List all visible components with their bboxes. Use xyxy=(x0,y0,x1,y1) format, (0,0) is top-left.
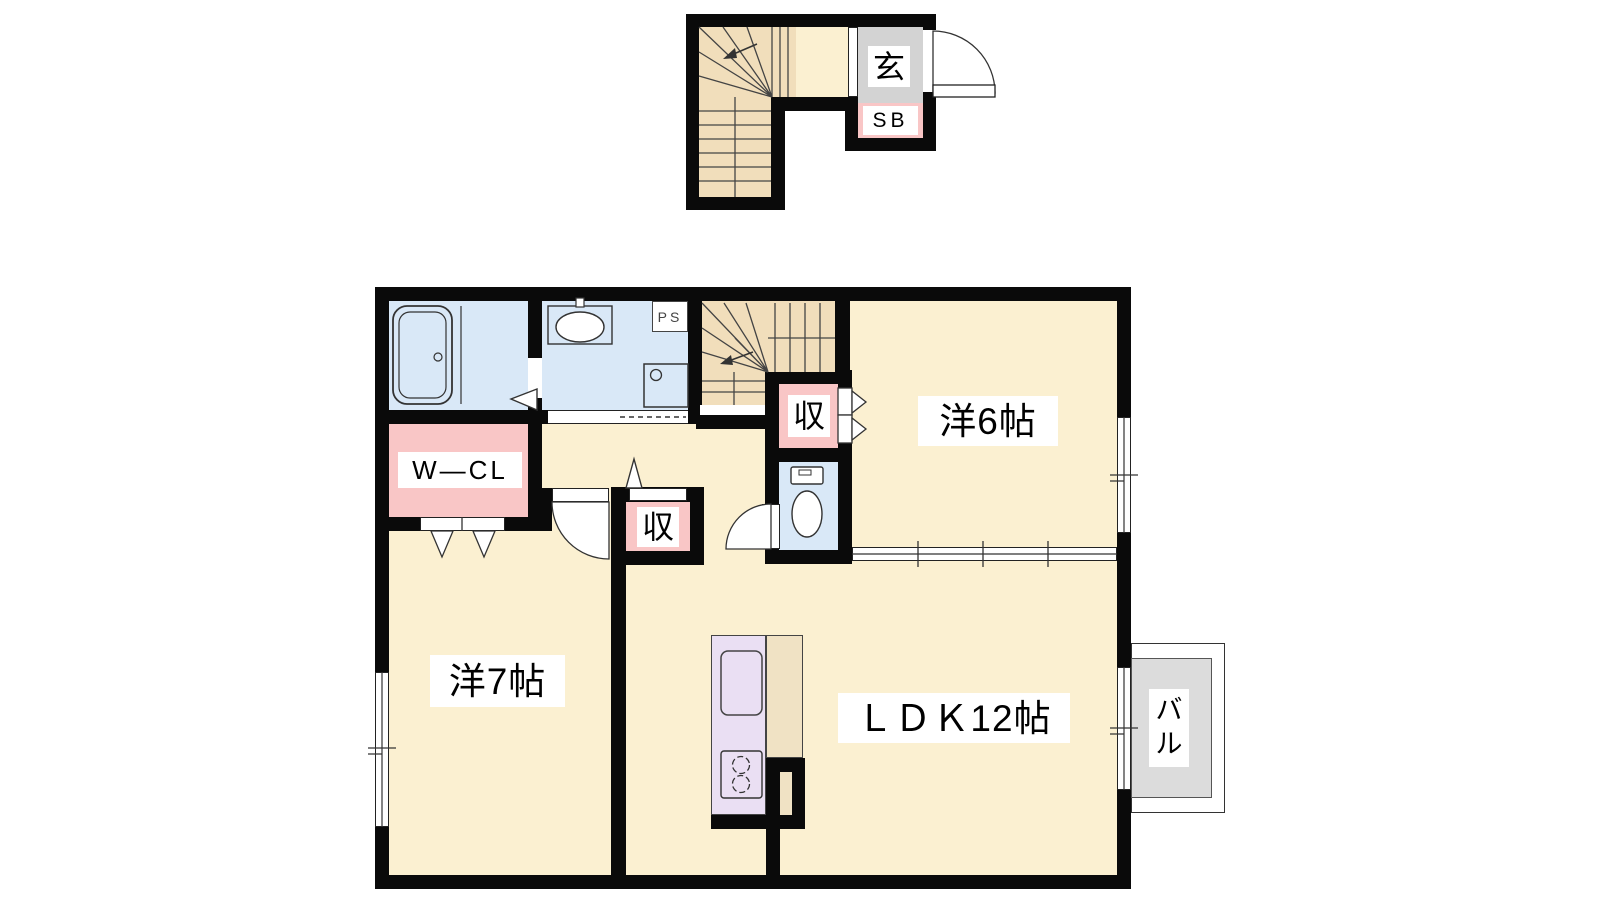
wcl-folding-door xyxy=(420,517,505,531)
hall-west-wall-stub xyxy=(528,488,552,531)
storage-upper-door-opening xyxy=(838,388,852,443)
entrance-stairs-run xyxy=(699,97,771,197)
toilet-door-leaf xyxy=(762,504,780,549)
pipe-space-label: PS xyxy=(652,301,688,332)
stairs-right-wall xyxy=(835,301,850,372)
west7-ldk-wall xyxy=(611,487,626,875)
balcony-label: バ ル xyxy=(1149,689,1189,767)
window-balcony-door xyxy=(1117,667,1131,790)
stairs-bottom-wall xyxy=(696,415,765,429)
western-room6-label: 洋6帖 xyxy=(918,396,1058,446)
door-swing-icon xyxy=(933,31,995,97)
floor-plan: 玄 SB PS 洋6帖 洋7帖 ＬＤＫ12帖 W―CL 収 収 バ ル xyxy=(0,0,1600,900)
entrance-landing xyxy=(796,27,848,97)
niche-top-wall xyxy=(780,758,805,772)
front-door-opening xyxy=(923,30,936,92)
kitchen-unit xyxy=(711,635,766,815)
balcony-label-char2: ル xyxy=(1156,728,1183,762)
niche-right-wall xyxy=(792,772,805,815)
kitchen-counter xyxy=(766,635,803,758)
outer-wall-top xyxy=(375,287,1131,301)
kitchen-bottom-wall xyxy=(711,815,766,829)
kitchen-niche xyxy=(780,772,792,815)
stairs-entry-opening xyxy=(700,405,765,415)
main-stairs-run xyxy=(702,372,765,405)
kitchen-ldk-wall xyxy=(766,758,780,875)
western-room7-label: 洋7帖 xyxy=(430,655,565,707)
sliding-partition xyxy=(852,547,1117,561)
shoebox-label: SB xyxy=(863,106,918,135)
outer-wall-bottom xyxy=(375,875,1131,889)
niche-bottom-wall xyxy=(780,815,805,829)
west7-door-leaf xyxy=(552,488,609,502)
storage-middle-bottom-wall xyxy=(611,551,704,565)
storage-upper-label: 収 xyxy=(788,395,830,437)
bathroom-door-opening xyxy=(528,358,542,398)
entrance-stairs-winder xyxy=(699,27,796,97)
toilet-room xyxy=(779,462,838,550)
main-stairs-winder xyxy=(702,301,835,372)
window-west7 xyxy=(375,672,389,827)
walk-in-closet-label: W―CL xyxy=(398,452,522,488)
storage-middle-label: 収 xyxy=(637,507,679,547)
storage-middle-door xyxy=(629,488,687,501)
bathroom xyxy=(389,301,528,410)
genkan-label: 玄 xyxy=(868,46,910,87)
window-west6 xyxy=(1117,417,1131,533)
entrance-doorframe xyxy=(848,27,858,97)
ldk-label: ＬＤＫ12帖 xyxy=(838,693,1070,743)
balcony-label-char1: バ xyxy=(1156,694,1183,728)
outer-wall-right xyxy=(1117,287,1131,889)
washroom-entry-opening xyxy=(548,410,688,424)
